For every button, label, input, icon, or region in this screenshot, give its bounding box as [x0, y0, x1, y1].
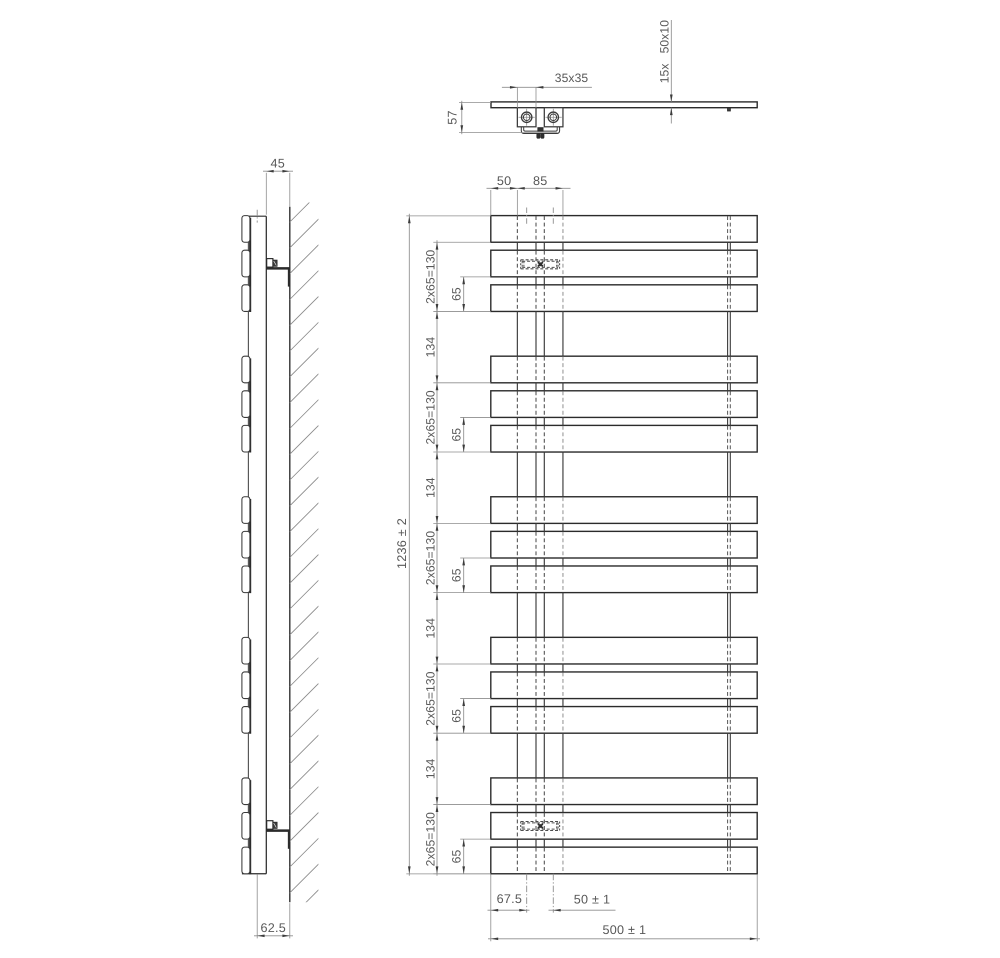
svg-text:67.5: 67.5	[497, 892, 523, 906]
svg-text:2x65=130: 2x65=130	[423, 531, 437, 585]
svg-text:50: 50	[497, 174, 512, 188]
svg-text:65: 65	[450, 850, 464, 864]
svg-text:65: 65	[450, 428, 464, 442]
svg-text:2x65=130: 2x65=130	[423, 249, 437, 303]
svg-text:1236 ± 2: 1236 ± 2	[395, 518, 409, 569]
svg-text:35x35: 35x35	[555, 71, 589, 85]
svg-text:134: 134	[423, 337, 437, 358]
svg-text:65: 65	[450, 568, 464, 582]
svg-text:134: 134	[423, 618, 437, 639]
svg-text:45: 45	[271, 157, 286, 171]
svg-text:134: 134	[423, 758, 437, 779]
svg-text:65: 65	[450, 709, 464, 723]
svg-text:500 ± 1: 500 ± 1	[603, 923, 647, 937]
svg-text:2x65=130: 2x65=130	[423, 390, 437, 444]
svg-text:15x: 15x	[658, 63, 672, 83]
svg-text:50x10: 50x10	[658, 20, 672, 54]
svg-text:134: 134	[423, 477, 437, 498]
svg-text:85: 85	[533, 174, 548, 188]
svg-text:50 ± 1: 50 ± 1	[574, 893, 610, 907]
svg-text:62.5: 62.5	[260, 921, 286, 935]
svg-text:65: 65	[450, 287, 464, 301]
svg-text:57: 57	[446, 110, 460, 125]
svg-text:2x65=130: 2x65=130	[423, 671, 437, 725]
svg-text:2x65=130: 2x65=130	[423, 812, 437, 866]
